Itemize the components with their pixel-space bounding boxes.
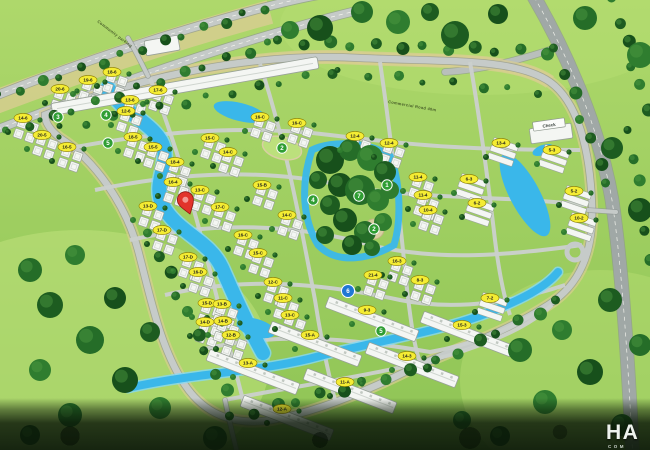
brand-logo-subtext: COM bbox=[608, 444, 650, 449]
svg-text:15-C: 15-C bbox=[205, 136, 216, 141]
svg-text:14-B: 14-B bbox=[218, 319, 229, 324]
svg-text:11-4: 11-4 bbox=[414, 175, 423, 180]
svg-text:1: 1 bbox=[385, 182, 389, 189]
svg-text:4: 4 bbox=[311, 197, 315, 204]
svg-text:6-3: 6-3 bbox=[466, 177, 473, 182]
svg-text:10-2: 10-2 bbox=[574, 216, 584, 221]
building-unit-marker: 18-4 bbox=[166, 157, 184, 166]
svg-text:8-3: 8-3 bbox=[417, 278, 424, 283]
svg-text:3: 3 bbox=[56, 114, 60, 121]
building-unit-marker: 15-B bbox=[253, 180, 271, 189]
building-unit-marker: 12-6 bbox=[117, 106, 135, 115]
building-unit-marker: 16-C bbox=[234, 230, 252, 239]
svg-text:19-6: 19-6 bbox=[83, 78, 93, 83]
building-unit-marker: 11-4 bbox=[409, 172, 427, 181]
svg-text:11-4: 11-4 bbox=[419, 193, 428, 198]
svg-text:12-6: 12-6 bbox=[121, 109, 131, 114]
svg-text:14-6: 14-6 bbox=[18, 116, 28, 121]
building-unit-marker: 17-6 bbox=[149, 85, 167, 94]
amenity-marker: 5 bbox=[376, 326, 386, 336]
svg-text:12-B: 12-B bbox=[226, 333, 237, 338]
svg-text:16-C: 16-C bbox=[255, 115, 266, 120]
svg-text:12-C: 12-C bbox=[268, 280, 279, 285]
svg-text:18-6: 18-6 bbox=[107, 70, 117, 75]
building-unit-marker: 15-5 bbox=[144, 142, 162, 151]
svg-text:16-D: 16-D bbox=[193, 270, 204, 275]
svg-text:17-6: 17-6 bbox=[153, 88, 163, 93]
building-unit-marker: 12-4 bbox=[346, 131, 364, 140]
building-unit-marker: 10-4 bbox=[419, 205, 437, 214]
map-canvas: 20-619-618-617-613-612-614-620-516-518-5… bbox=[0, 0, 650, 450]
building-unit-marker: 16-C bbox=[288, 118, 306, 127]
building-unit-marker: 14-3 bbox=[398, 351, 416, 360]
building-unit-marker: 14-B bbox=[214, 316, 232, 325]
svg-text:2: 2 bbox=[280, 145, 284, 152]
svg-text:6: 6 bbox=[346, 288, 350, 295]
svg-text:16-C: 16-C bbox=[292, 121, 303, 126]
svg-text:4: 4 bbox=[104, 112, 108, 119]
svg-text:10-4: 10-4 bbox=[423, 208, 433, 213]
building-unit-marker: 14-C bbox=[278, 210, 296, 219]
building-unit-marker: 13-D bbox=[139, 201, 157, 210]
svg-text:12-4: 12-4 bbox=[384, 141, 394, 146]
svg-text:7: 7 bbox=[357, 193, 361, 200]
building-unit-marker: 5-2 bbox=[565, 186, 583, 195]
building-unit-marker: 14-C bbox=[219, 147, 237, 156]
building-unit-marker: 12-4 bbox=[380, 138, 398, 147]
building-unit-marker: 16-C bbox=[251, 112, 269, 121]
svg-text:21-4: 21-4 bbox=[368, 273, 378, 278]
svg-text:17-D: 17-D bbox=[157, 228, 168, 233]
svg-text:16-5: 16-5 bbox=[62, 145, 72, 150]
building-unit-marker: 15-C bbox=[201, 133, 219, 142]
building-unit-marker: 21-4 bbox=[364, 270, 382, 279]
svg-text:6-2: 6-2 bbox=[474, 201, 481, 206]
svg-text:5: 5 bbox=[106, 140, 110, 147]
brand-logo: HA bbox=[606, 421, 650, 445]
building-unit-marker: 17-C bbox=[211, 202, 229, 211]
building-unit-marker: 11-A bbox=[336, 377, 354, 386]
svg-text:14-C: 14-C bbox=[282, 213, 293, 218]
building-unit-marker: 15-C bbox=[249, 248, 267, 257]
building-unit-marker: 12-A bbox=[273, 404, 291, 413]
svg-text:15-D: 15-D bbox=[202, 301, 213, 306]
building-unit-marker: 14-6 bbox=[14, 113, 32, 122]
building-unit-marker: 15-3 bbox=[453, 320, 471, 329]
svg-text:7-2: 7-2 bbox=[487, 296, 494, 301]
amenity-marker: 7 bbox=[354, 191, 364, 201]
building-unit-marker: 11-C bbox=[274, 293, 292, 302]
svg-text:17-D: 17-D bbox=[183, 255, 194, 260]
amenity-marker: 4 bbox=[308, 195, 318, 205]
building-unit-marker: 17-D bbox=[153, 225, 171, 234]
svg-text:16-3: 16-3 bbox=[392, 259, 402, 264]
amenity-marker: 6 bbox=[342, 285, 355, 298]
building-unit-marker: 6-2 bbox=[468, 198, 486, 207]
building-unit-marker: 5-3 bbox=[543, 145, 561, 154]
building-unit-marker: 10-2 bbox=[570, 213, 588, 222]
svg-text:13-C: 13-C bbox=[195, 188, 206, 193]
svg-text:16-4: 16-4 bbox=[168, 180, 178, 185]
svg-text:18-5: 18-5 bbox=[128, 135, 138, 140]
svg-text:14-C: 14-C bbox=[223, 150, 234, 155]
amenity-marker: 1 bbox=[382, 180, 392, 190]
building-unit-marker: 18-6 bbox=[103, 67, 121, 76]
svg-text:13-B: 13-B bbox=[217, 302, 228, 307]
building-unit-marker: 7-2 bbox=[481, 293, 499, 302]
amenity-marker: 5 bbox=[103, 138, 113, 148]
svg-text:13-A: 13-A bbox=[243, 361, 254, 366]
building-unit-marker: 13-B bbox=[213, 299, 231, 308]
building-unit-marker: 13-6 bbox=[121, 95, 139, 104]
svg-text:16-C: 16-C bbox=[238, 233, 249, 238]
amenity-marker: 2 bbox=[277, 143, 287, 153]
svg-text:2: 2 bbox=[372, 226, 376, 233]
masterplan-map: 20-619-618-617-613-612-614-620-516-518-5… bbox=[0, 0, 650, 450]
svg-text:14-D: 14-D bbox=[200, 320, 211, 325]
building-unit-marker: 16-3 bbox=[388, 256, 406, 265]
building-unit-marker: 20-5 bbox=[33, 130, 51, 139]
building-unit-marker: 12-C bbox=[264, 277, 282, 286]
building-unit-marker: 16-4 bbox=[164, 177, 182, 186]
building-unit-marker: 18-5 bbox=[124, 132, 142, 141]
building-unit-marker: 19-6 bbox=[79, 75, 97, 84]
svg-text:9-3: 9-3 bbox=[364, 308, 371, 313]
svg-text:13-6: 13-6 bbox=[125, 98, 135, 103]
svg-text:13-D: 13-D bbox=[143, 204, 154, 209]
building-unit-marker: 13-4 bbox=[492, 138, 510, 147]
svg-text:20-6: 20-6 bbox=[55, 87, 65, 92]
svg-text:15-C: 15-C bbox=[253, 251, 264, 256]
svg-text:12-4: 12-4 bbox=[350, 134, 360, 139]
building-unit-marker: 13-C bbox=[281, 310, 299, 319]
svg-text:17-C: 17-C bbox=[215, 205, 226, 210]
building-unit-marker: 6-3 bbox=[460, 174, 478, 183]
building-unit-marker: 16-D bbox=[189, 267, 207, 276]
svg-text:11-A: 11-A bbox=[340, 380, 350, 385]
svg-text:18-4: 18-4 bbox=[170, 160, 180, 165]
svg-text:12-A: 12-A bbox=[277, 407, 288, 412]
building-unit-marker: 8-3 bbox=[411, 275, 429, 284]
svg-text:15-5: 15-5 bbox=[148, 145, 158, 150]
svg-text:13-4: 13-4 bbox=[496, 141, 506, 146]
building-unit-marker: 16-5 bbox=[58, 142, 76, 151]
svg-text:15-B: 15-B bbox=[257, 183, 268, 188]
building-unit-marker: 15-A bbox=[301, 330, 319, 339]
svg-text:5-2: 5-2 bbox=[571, 189, 578, 194]
amenity-marker: 2 bbox=[369, 224, 379, 234]
building-unit-marker: 20-6 bbox=[51, 84, 69, 93]
building-unit-marker: 13-C bbox=[191, 185, 209, 194]
amenity-marker: 3 bbox=[53, 112, 63, 122]
svg-text:20-5: 20-5 bbox=[37, 133, 47, 138]
svg-text:15-A: 15-A bbox=[305, 333, 316, 338]
building-unit-marker: 12-B bbox=[222, 330, 240, 339]
svg-text:13-C: 13-C bbox=[285, 313, 296, 318]
building-unit-marker: 11-4 bbox=[414, 190, 432, 199]
building-unit-marker: 17-D bbox=[179, 252, 197, 261]
svg-text:14-3: 14-3 bbox=[402, 354, 412, 359]
svg-text:5: 5 bbox=[379, 328, 383, 335]
svg-text:11-C: 11-C bbox=[278, 296, 288, 301]
building-unit-marker: 13-A bbox=[239, 358, 257, 367]
svg-text:15-3: 15-3 bbox=[457, 323, 467, 328]
building-unit-marker: 9-3 bbox=[358, 305, 376, 314]
amenity-marker: 4 bbox=[101, 110, 111, 120]
svg-text:5-3: 5-3 bbox=[549, 148, 556, 153]
building-unit-marker: 14-D bbox=[196, 317, 214, 326]
